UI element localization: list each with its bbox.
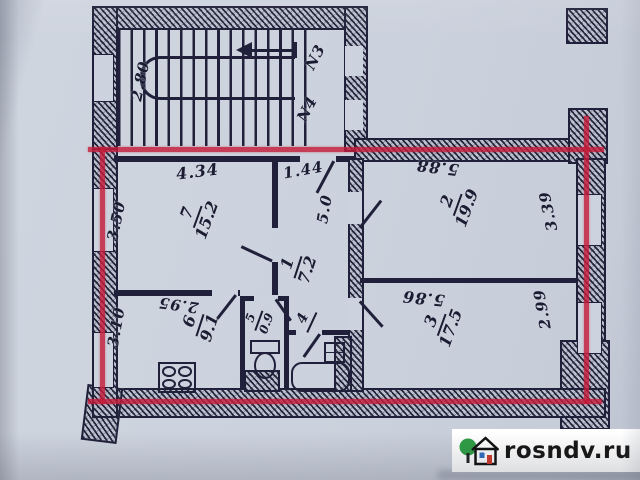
dim-room3-depth: 2.99 xyxy=(530,287,555,330)
watermark-text: rosndv.ru xyxy=(504,438,632,464)
floor-plan-photo: 2.80 N3 N4 4.34 3.50 1.44 5.0 5.88 3.39 … xyxy=(0,0,640,480)
room-label-2: 219.9 xyxy=(433,180,482,229)
window-room2 xyxy=(577,194,602,246)
window-stairwell xyxy=(93,54,114,102)
room-label-1: 17.2 xyxy=(276,248,320,286)
red-boundary-right xyxy=(584,116,589,404)
stair-handrail xyxy=(140,56,295,100)
stove-icon xyxy=(158,362,196,393)
red-boundary-bottom xyxy=(88,399,602,404)
bathtub-icon xyxy=(291,362,350,392)
door-leaf-bath xyxy=(303,334,321,358)
dim-hall-length: 5.0 xyxy=(313,193,336,225)
red-boundary-top xyxy=(88,147,604,152)
dim-room7-width: 4.34 xyxy=(175,159,220,183)
sink-icon xyxy=(324,342,345,363)
window-room3 xyxy=(577,302,602,354)
door-leaf-room7 xyxy=(241,246,273,263)
dim-room2-width: 5.88 xyxy=(415,155,460,179)
room-label-5: 50.9 xyxy=(241,306,276,336)
stair-arrow-head-icon xyxy=(236,42,252,58)
door-gap-entrance-n4 xyxy=(345,100,363,130)
rosndv-watermark: rosndv.ru xyxy=(452,429,640,472)
door-gap-entrance-n3 xyxy=(345,46,363,76)
wall-neighbor-corner xyxy=(566,8,608,44)
wall-stair-top xyxy=(92,6,368,30)
partition-room7-hall-a xyxy=(272,162,278,228)
stair-direction-arrow xyxy=(252,49,296,52)
door-gap-room2 xyxy=(346,192,362,224)
room-label-7: 715.2 xyxy=(173,192,222,241)
room-label-6: 69.1 xyxy=(178,306,222,344)
door-gap-wc xyxy=(254,295,278,302)
rosndv-logo-icon xyxy=(459,434,499,468)
toilet-bowl-icon xyxy=(254,352,276,379)
partition-rooms-2-3 xyxy=(360,278,576,283)
red-boundary-left xyxy=(100,147,105,404)
wall-stair-right xyxy=(344,6,368,152)
dim-room2-depth: 3.39 xyxy=(535,189,561,232)
stair-arrow-tail xyxy=(294,42,297,58)
